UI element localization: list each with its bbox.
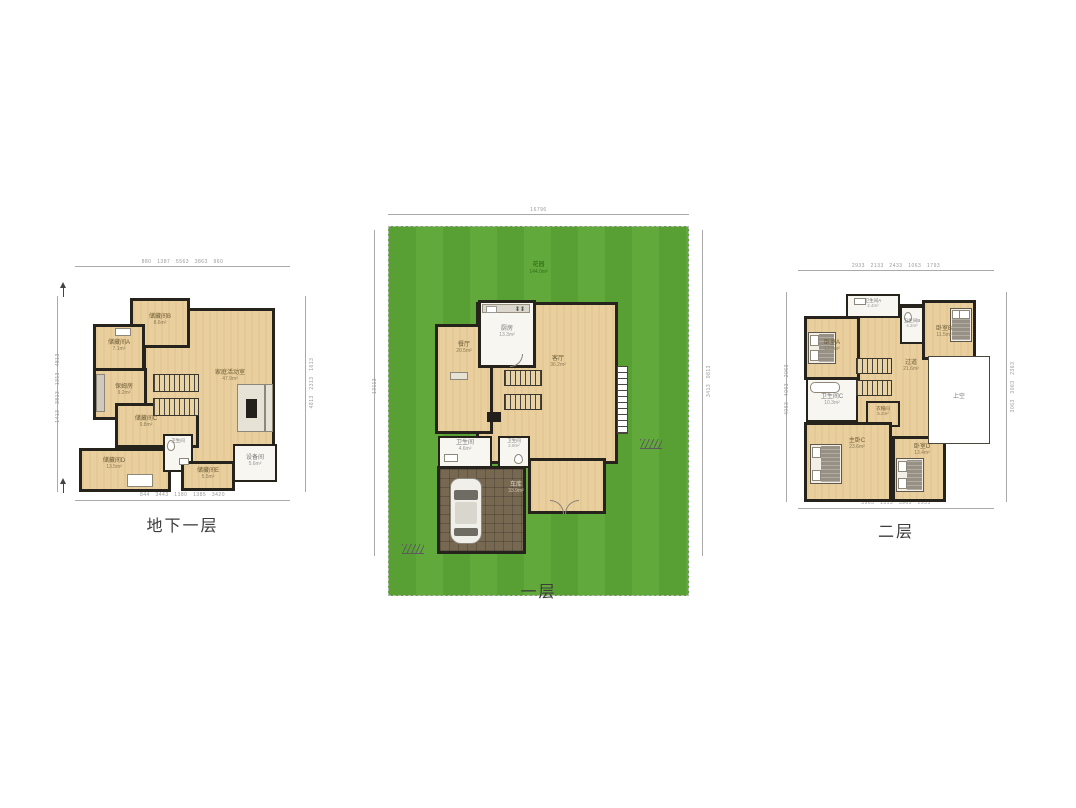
second-floor-title: 二层 xyxy=(798,518,994,542)
pillow xyxy=(812,470,821,481)
garden-gate-icon xyxy=(402,544,424,554)
washbasin-icon xyxy=(444,454,458,462)
bed-icon xyxy=(896,458,924,492)
media-wall xyxy=(237,384,265,432)
washbasin-icon xyxy=(854,298,866,305)
basement-dim-left: 1413 3813 1313 4813 xyxy=(55,298,61,478)
room-bath-1 xyxy=(438,436,492,468)
first-dim-line-top xyxy=(388,214,689,215)
pillow xyxy=(959,310,970,319)
second-dim-right: 3063 3063 2363 xyxy=(1010,297,1016,477)
room-storage-d xyxy=(79,448,171,492)
basement-dim-right: 4813 2313 1613 xyxy=(309,298,315,468)
basement-dim-top: 880 1387 5563 3863 960 xyxy=(75,259,290,265)
first-floor-title: 一层 xyxy=(388,578,689,602)
car-rear-window xyxy=(454,528,478,536)
tv-icon xyxy=(246,399,257,418)
room-void xyxy=(928,356,990,444)
pillow xyxy=(810,350,819,361)
kitchen-counter xyxy=(482,304,530,313)
bathtub-icon xyxy=(810,382,840,393)
blanket xyxy=(907,460,922,490)
north-arrow-icon xyxy=(59,478,69,494)
basement-dim-line-bottom xyxy=(75,500,290,501)
garden-label: 花园 144.0m² xyxy=(388,262,689,275)
north-arrow-icon xyxy=(59,282,69,298)
second-dim-line-top xyxy=(798,270,994,271)
blanket xyxy=(821,446,840,482)
first-dim-top: 16796 xyxy=(388,207,689,213)
first-floor-plan: 16796 1413 1980 4240 2980 5563 13113 341… xyxy=(388,226,689,596)
room-bath-2 xyxy=(498,436,530,468)
second-stairs xyxy=(856,358,892,374)
dining-table xyxy=(450,372,468,380)
sink-icon xyxy=(115,328,131,336)
pillow xyxy=(812,447,821,458)
basement-dim-line-top xyxy=(75,266,290,267)
sink-icon xyxy=(486,306,497,313)
second-dim-line-right xyxy=(1006,292,1007,502)
basement-dim-line-right xyxy=(305,296,306,492)
car xyxy=(450,478,482,544)
second-dim-top: 2933 2133 2433 1063 1793 xyxy=(798,263,994,269)
pillow xyxy=(810,335,819,346)
bed-icon xyxy=(810,444,842,484)
basement-stairs xyxy=(153,374,199,392)
wardrobe xyxy=(96,374,105,412)
second-dim-left: 4063 4063 2063 xyxy=(784,297,790,482)
first-stairs xyxy=(504,370,542,386)
first-dim-line-right xyxy=(702,230,703,556)
bed-icon xyxy=(808,332,836,364)
blanket xyxy=(819,334,834,362)
pillow xyxy=(898,461,907,472)
car-roof xyxy=(455,502,477,524)
shelf xyxy=(265,384,273,432)
toilet-icon xyxy=(167,440,175,451)
toilet-icon xyxy=(514,454,523,464)
basement-stairs xyxy=(153,398,199,416)
stove-icon xyxy=(515,306,525,311)
basement-title: 地下一层 xyxy=(75,512,290,536)
room-storage-e xyxy=(181,461,235,491)
room-equipment xyxy=(233,444,277,482)
washbasin-icon xyxy=(179,458,189,465)
toilet-icon xyxy=(904,312,912,322)
second-dim-line-bottom xyxy=(798,508,994,509)
blanket xyxy=(952,319,970,340)
fireplace xyxy=(487,412,501,422)
garden-gate-icon xyxy=(640,439,662,449)
second-stairs xyxy=(856,380,892,396)
basement-floor-plan: 880 1387 5563 3863 960 844 3443 1380 138… xyxy=(75,278,290,538)
car-windshield xyxy=(454,490,478,500)
bay-window-icon xyxy=(617,366,628,434)
first-dim-right: 3413 9813 xyxy=(706,286,712,476)
pillow xyxy=(898,478,907,489)
first-stairs xyxy=(504,394,542,410)
first-dim-left: 13113 xyxy=(372,286,378,486)
rug xyxy=(127,474,153,487)
bed-icon xyxy=(950,308,972,342)
room-bath-b xyxy=(900,306,924,344)
second-floor-plan: 2933 2133 2433 1063 1793 3963 1313 3963 … xyxy=(798,282,994,542)
basement-dim-bottom: 844 3443 1380 1385 3420 xyxy=(75,492,290,498)
